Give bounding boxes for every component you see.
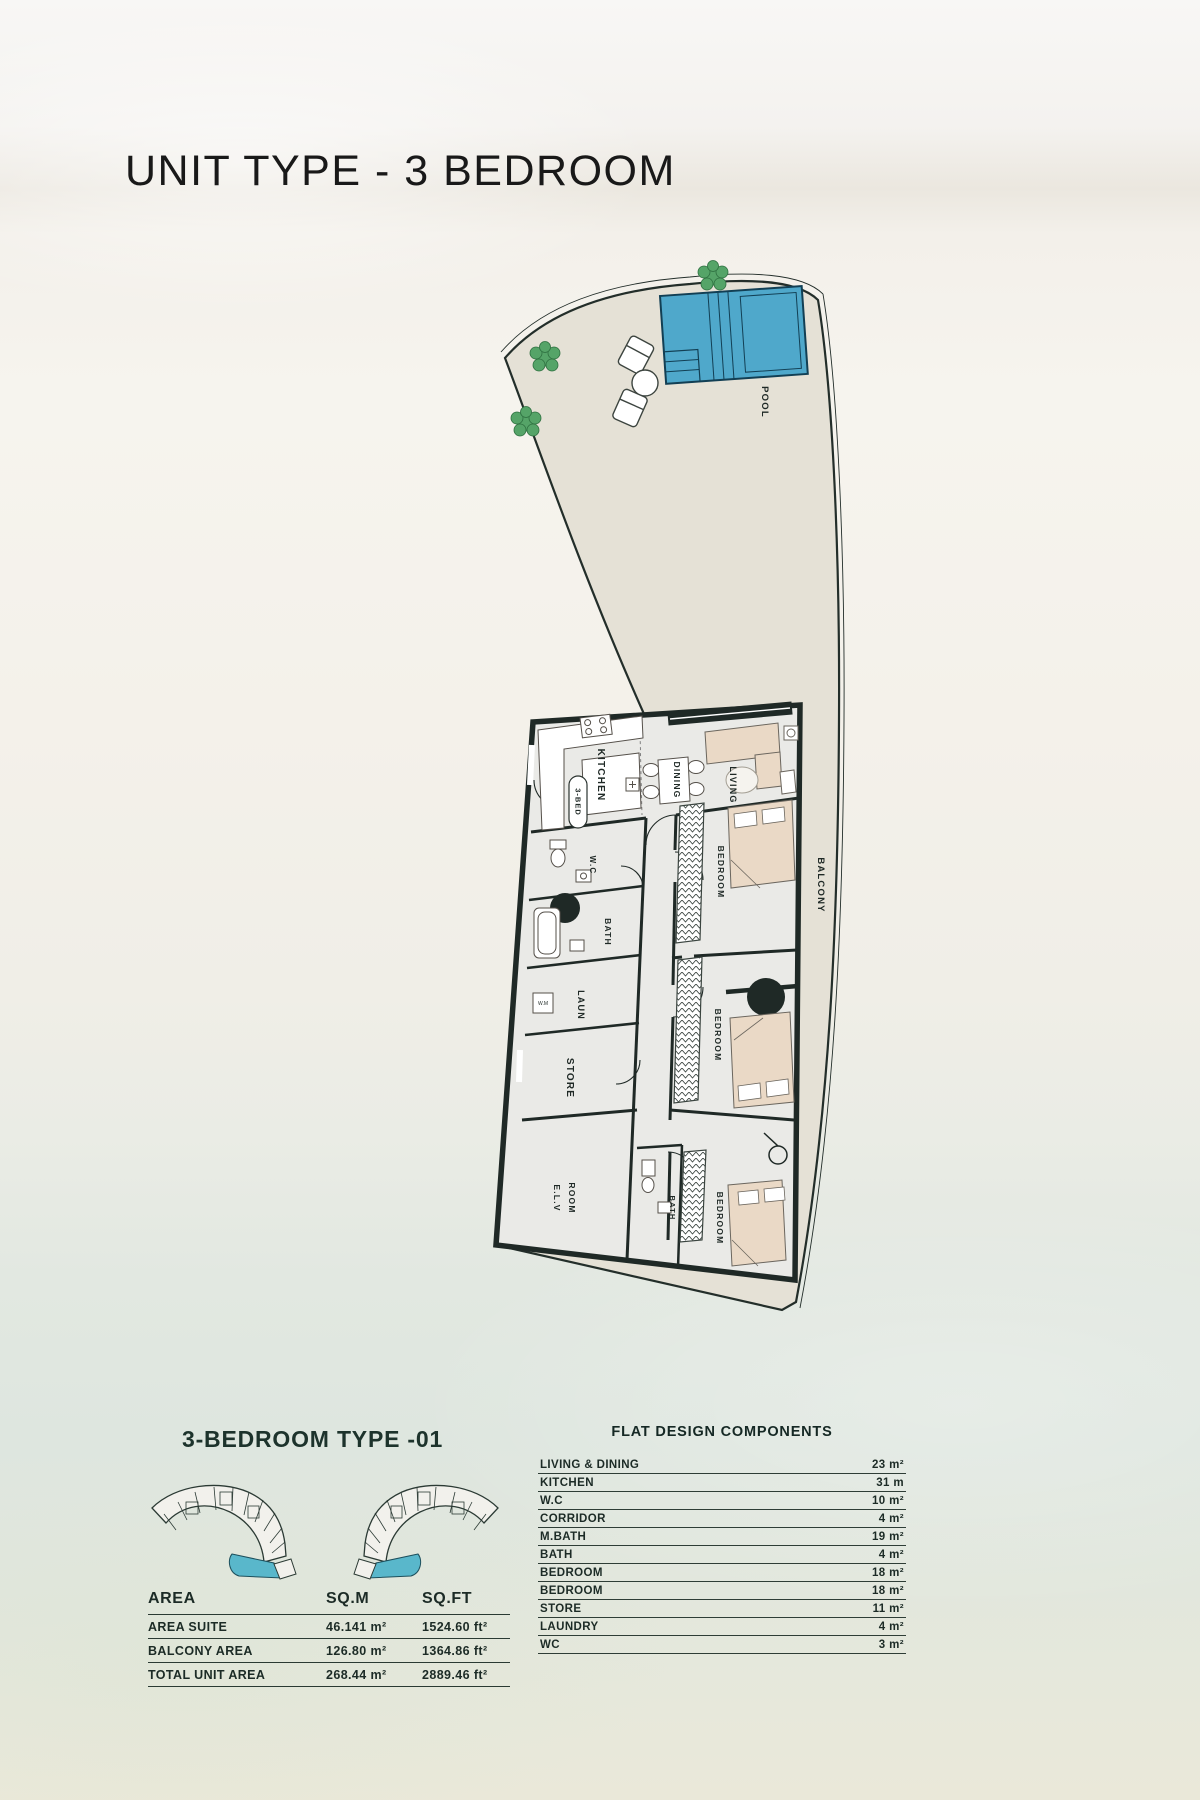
table-row: CORRIDOR 4 m² [538, 1510, 906, 1528]
row-sqft: 2889.46 ft² [422, 1668, 510, 1682]
row-value: 3 m² [879, 1639, 904, 1651]
row-label: BEDROOM [540, 1585, 603, 1597]
table-row: TOTAL UNIT AREA 268.44 m² 2889.46 ft² [148, 1663, 510, 1687]
sqm-col-header: SQ.M [326, 1590, 422, 1608]
table-row: KITCHEN 31 m [538, 1474, 906, 1492]
components-heading: FLAT DESIGN COMPONENTS [538, 1424, 906, 1440]
pool [660, 286, 808, 384]
key-plan-heading: 3-BEDROOM TYPE -01 [182, 1426, 443, 1453]
row-value: 23 m² [872, 1459, 904, 1471]
bedroom3-label: BEDROOM [715, 1192, 725, 1245]
row-value: 4 m² [879, 1621, 904, 1633]
row-sqm: 46.141 m² [326, 1620, 422, 1634]
area-col-header: AREA [148, 1590, 326, 1608]
row-label: W.C [540, 1495, 563, 1507]
row-label: M.BATH [540, 1531, 586, 1543]
row-label: WC [540, 1639, 560, 1651]
store-label: STORE [564, 1058, 575, 1098]
row-value: 31 m [876, 1477, 904, 1489]
row-label: AREA SUITE [148, 1620, 326, 1634]
table-row: LIVING & DINING 23 m² [538, 1456, 906, 1474]
row-label: LAUNDRY [540, 1621, 599, 1633]
table-row: BATH 4 m² [538, 1546, 906, 1564]
dining-label: DINING [672, 762, 682, 799]
row-label: BALCONY AREA [148, 1644, 326, 1658]
row-label: KITCHEN [540, 1477, 594, 1489]
pool-label: POOL [759, 386, 770, 418]
row-sqm: 268.44 m² [326, 1668, 422, 1682]
bedroom2-label: BEDROOM [713, 1009, 723, 1062]
row-value: 10 m² [872, 1495, 904, 1507]
row-label: LIVING & DINING [540, 1459, 639, 1471]
area-table: AREA SQ.M SQ.FT AREA SUITE 46.141 m² 152… [148, 1590, 510, 1687]
row-value: 11 m² [873, 1603, 904, 1615]
elv-room-label-2: ROOM [567, 1182, 577, 1213]
key-plan-right [354, 1485, 498, 1579]
row-value: 18 m² [872, 1585, 904, 1597]
key-plan-thumbnails [140, 1478, 510, 1582]
row-value: 18 m² [872, 1567, 904, 1579]
laundry-label: LAUN [576, 990, 586, 1020]
row-value: 4 m² [879, 1549, 904, 1561]
wc-label: W.C [588, 856, 597, 875]
table-row: LAUNDRY 4 m² [538, 1618, 906, 1636]
row-label: STORE [540, 1603, 581, 1615]
row-label: BATH [540, 1549, 573, 1561]
table-row: WC 3 m² [538, 1636, 906, 1654]
row-label: CORRIDOR [540, 1513, 606, 1525]
unit-tag: 3-BED [569, 776, 587, 828]
laundry-fixtures: W.M [533, 993, 553, 1013]
washer-label: W.M [538, 1001, 548, 1007]
elv-room-label: E.L.V [552, 1184, 562, 1211]
row-sqm: 126.80 m² [326, 1644, 422, 1658]
floor-plan: POOL [430, 240, 870, 1330]
row-value: 4 m² [879, 1513, 904, 1525]
row-value: 19 m² [872, 1531, 904, 1543]
row-sqft: 1364.86 ft² [422, 1644, 510, 1658]
table-row: AREA SUITE 46.141 m² 1524.60 ft² [148, 1615, 510, 1639]
svg-text:3-BED: 3-BED [574, 788, 583, 816]
area-table-header: AREA SQ.M SQ.FT [148, 1590, 510, 1615]
key-plan-left [152, 1485, 296, 1579]
bath2-label: BATH [668, 1195, 677, 1220]
table-row: STORE 11 m² [538, 1600, 906, 1618]
row-sqft: 1524.60 ft² [422, 1620, 510, 1634]
table-row: W.C 10 m² [538, 1492, 906, 1510]
table-row: BEDROOM 18 m² [538, 1582, 906, 1600]
page-title: UNIT TYPE - 3 BEDROOM [125, 147, 676, 196]
bedroom1-label: BEDROOM [716, 846, 726, 899]
sqft-col-header: SQ.FT [422, 1590, 510, 1608]
row-label: BEDROOM [540, 1567, 603, 1579]
table-row: M.BATH 19 m² [538, 1528, 906, 1546]
table-row: BALCONY AREA 126.80 m² 1364.86 ft² [148, 1639, 510, 1663]
kitchen-label: KITCHEN [595, 749, 606, 802]
living-label: LIVING [728, 766, 738, 803]
row-label: TOTAL UNIT AREA [148, 1668, 326, 1682]
balcony-label: BALCONY [815, 857, 826, 912]
bath-label: BATH [603, 918, 613, 946]
components-table: LIVING & DINING 23 m² KITCHEN 31 m W.C 1… [538, 1456, 906, 1654]
table-row: BEDROOM 18 m² [538, 1564, 906, 1582]
